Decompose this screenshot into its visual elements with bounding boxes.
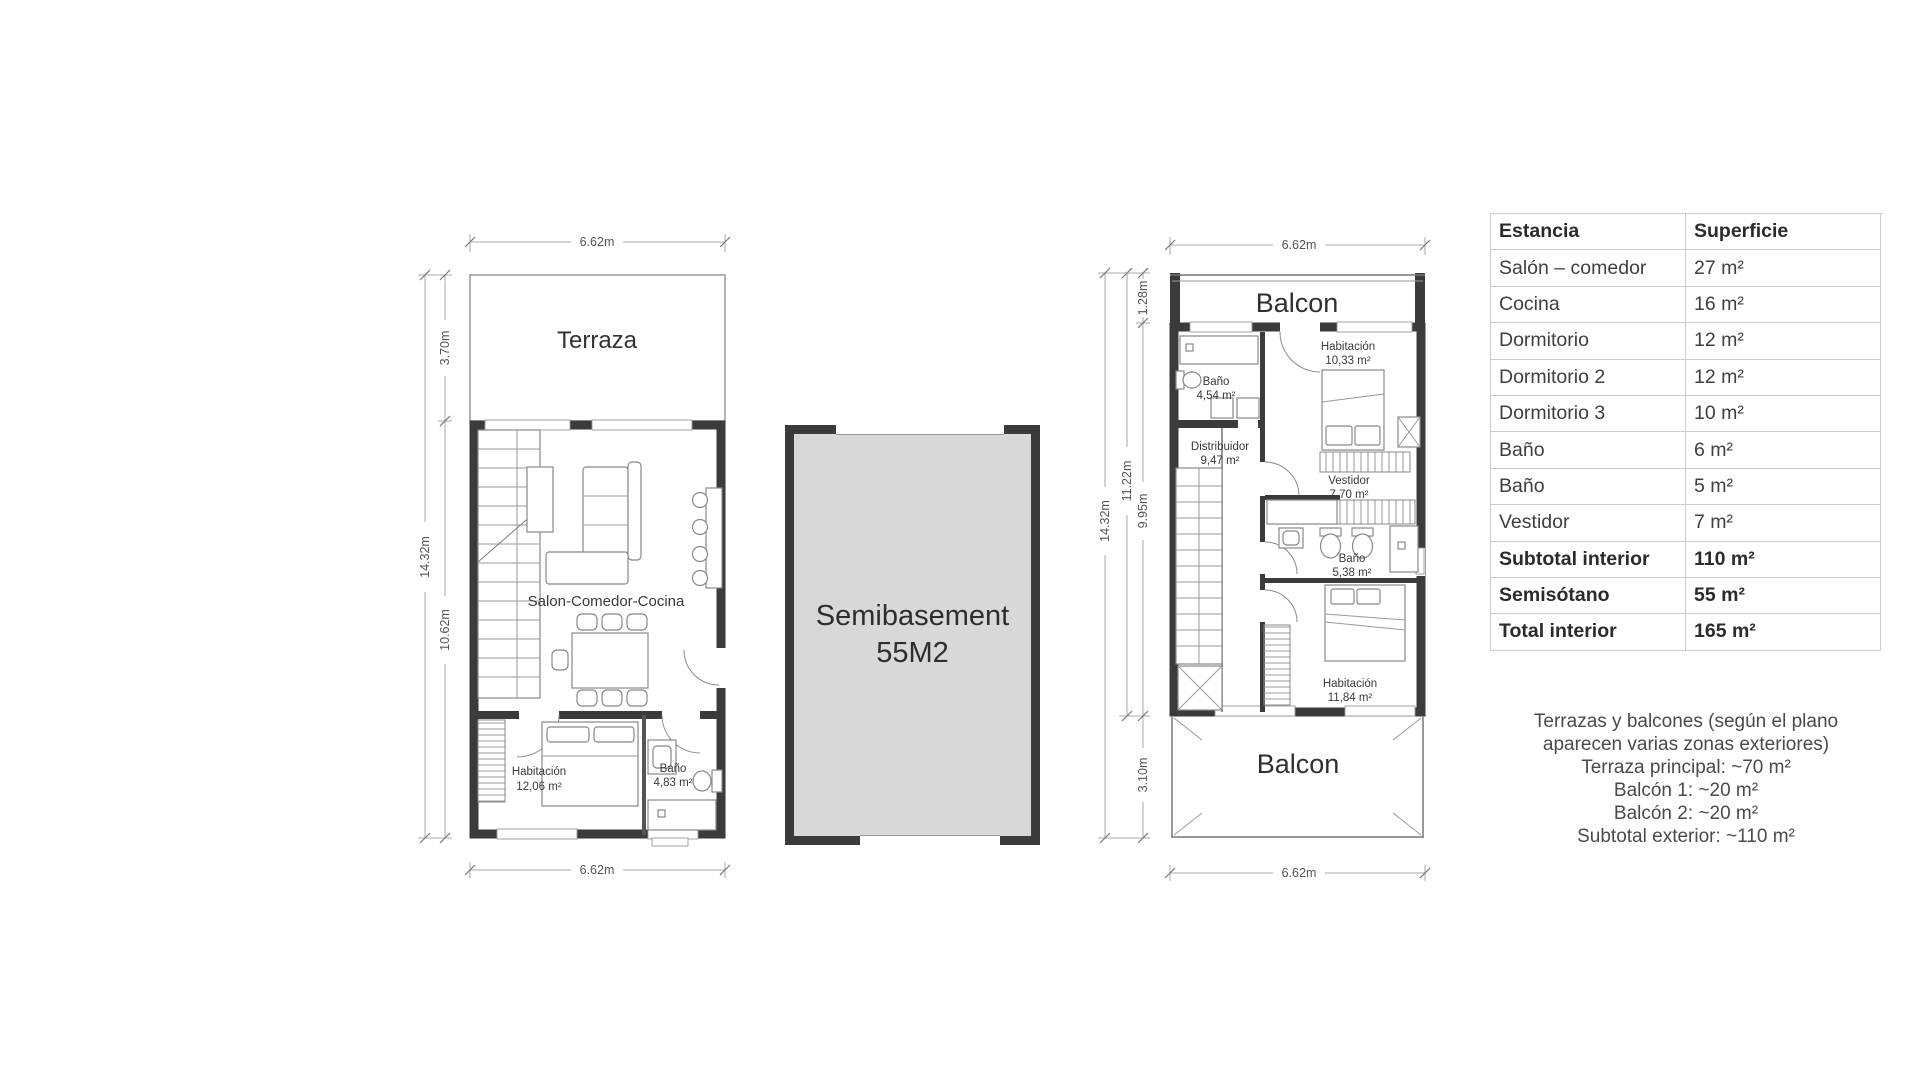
table-cell-superficie: 12 m²	[1686, 323, 1881, 359]
bano-label: Baño	[660, 763, 687, 775]
right-floor-plan: 6.62m 6.62m 14.32m 11.22m 1.28m 9.95m 3.…	[1090, 228, 1440, 890]
dim-left-width-bottom: 6.62m	[580, 863, 615, 877]
table-header-estancia: Estancia	[1491, 214, 1686, 250]
table-cell-estancia: Salón – comedor	[1491, 250, 1686, 286]
table-cell-superficie: 5 m²	[1686, 469, 1881, 505]
vestidor-area: 7,70 m²	[1330, 489, 1369, 501]
habitacion-area: 12,06 m²	[516, 781, 562, 793]
door-step	[652, 838, 688, 846]
left-floor-plan: 6.62m 6.62m 14.32m 3.70m 10.62m Terraza	[410, 228, 750, 890]
table-cell-estancia: Vestidor	[1491, 505, 1686, 541]
dim-right-height-upper: 11.22m	[1120, 461, 1134, 502]
basement-door-opening-bottom	[860, 835, 1000, 845]
table-cell-estancia: Baño	[1491, 469, 1686, 505]
table-cell-superficie: 110 m²	[1686, 542, 1881, 578]
dim-right-height-interior: 9.95m	[1136, 494, 1150, 529]
distribuidor-label: Distribuidor	[1191, 441, 1249, 453]
table-cell-superficie: 12 m²	[1686, 360, 1881, 396]
notes-line: Terrazas y balcones (según el plano	[1490, 710, 1882, 733]
table-cell-estancia: Dormitorio 2	[1491, 360, 1686, 396]
window	[1337, 322, 1412, 332]
shaft	[1398, 417, 1420, 447]
table-cell-estancia: Semisótano	[1491, 578, 1686, 614]
balcon-bottom-label: Balcon	[1257, 749, 1340, 779]
bedroom	[478, 720, 638, 806]
notes-line: Balcón 1: ~20 m²	[1490, 779, 1882, 802]
distribuidor-area: 9,47 m²	[1201, 455, 1240, 467]
habitacion2-area: 11,84 m²	[1328, 692, 1373, 704]
bano-area: 4,83 m²	[654, 777, 693, 789]
table-cell-estancia: Dormitorio 3	[1491, 396, 1686, 432]
dim-right-balcon-top: 1.28m	[1136, 281, 1150, 316]
window	[592, 420, 692, 430]
area-table: Estancia Superficie Salón – comedor27 m²…	[1490, 213, 1883, 651]
dim-left-height-terrace: 3.70m	[438, 331, 452, 366]
habitacion1-area: 10,33 m²	[1325, 355, 1371, 367]
table-cell-estancia: Dormitorio	[1491, 323, 1686, 359]
terraza-label: Terraza	[557, 327, 638, 354]
table-cell-superficie: 27 m²	[1686, 250, 1881, 286]
bano2-label: Baño	[1339, 553, 1366, 565]
table-header-superficie: Superficie	[1686, 214, 1881, 250]
wardrobe	[1267, 500, 1415, 524]
habitacion-label: Habitación	[512, 766, 566, 778]
table-cell-superficie: 7 m²	[1686, 505, 1881, 541]
bed-2	[1325, 585, 1405, 661]
table-cell-superficie: 16 m²	[1686, 287, 1881, 323]
vestidor-label: Vestidor	[1328, 475, 1370, 487]
table-cell-estancia: Total interior	[1491, 614, 1686, 650]
notes-line: Balcón 2: ~20 m²	[1490, 802, 1882, 825]
semibasement-label: Semibasement	[816, 598, 1009, 635]
window	[1215, 706, 1295, 716]
dim-right-height-total: 14.32m	[1098, 500, 1112, 542]
basement-ladder	[1264, 625, 1290, 705]
table-cell-estancia: Subtotal interior	[1491, 542, 1686, 578]
habitacion2-label: Habitación	[1323, 678, 1377, 690]
exterior-notes-block: Terrazas y balcones (según el plano apar…	[1490, 710, 1882, 848]
bano2-area: 5,38 m²	[1333, 567, 1372, 579]
dim-left-height-total: 14.32m	[418, 536, 432, 578]
table-cell-estancia: Cocina	[1491, 287, 1686, 323]
balcon-bottom: Balcon	[1172, 716, 1423, 838]
window	[1190, 322, 1252, 332]
window	[485, 420, 570, 430]
dim-left-width-top: 6.62m	[580, 235, 615, 249]
table-cell-superficie: 165 m²	[1686, 614, 1881, 650]
semibasement-area: 55M2	[876, 635, 949, 672]
salon-label: Salon-Comedor-Cocina	[528, 593, 685, 610]
window	[497, 829, 577, 839]
dim-right-width-top: 6.62m	[1282, 238, 1317, 252]
notes-line: aparecen varias zonas exteriores)	[1490, 733, 1882, 756]
dim-right-balcon-bottom: 3.10m	[1136, 758, 1150, 793]
sideboard	[527, 467, 553, 532]
notes-line: Terraza principal: ~70 m²	[1490, 756, 1882, 779]
staircase-right	[1176, 468, 1222, 710]
dim-left-height-interior: 10.62m	[438, 609, 452, 651]
table-cell-superficie: 55 m²	[1686, 578, 1881, 614]
window	[1345, 706, 1415, 716]
balcon-top-label: Balcon	[1256, 288, 1339, 318]
table-cell-estancia: Baño	[1491, 432, 1686, 468]
bano1-area: 4,54 m²	[1197, 390, 1236, 402]
dim-right-width-bottom: 6.62m	[1282, 866, 1317, 880]
table-cell-superficie: 10 m²	[1686, 396, 1881, 432]
terraza-area: Terraza	[470, 275, 725, 421]
basement-door-opening-top	[836, 425, 1004, 435]
notes-line: Subtotal exterior: ~110 m²	[1490, 825, 1882, 848]
bano1-label: Baño	[1203, 376, 1230, 388]
table-cell-superficie: 6 m²	[1686, 432, 1881, 468]
habitacion1-label: Habitación	[1321, 341, 1375, 353]
semibasement-block: Semibasement 55M2	[785, 425, 1040, 845]
